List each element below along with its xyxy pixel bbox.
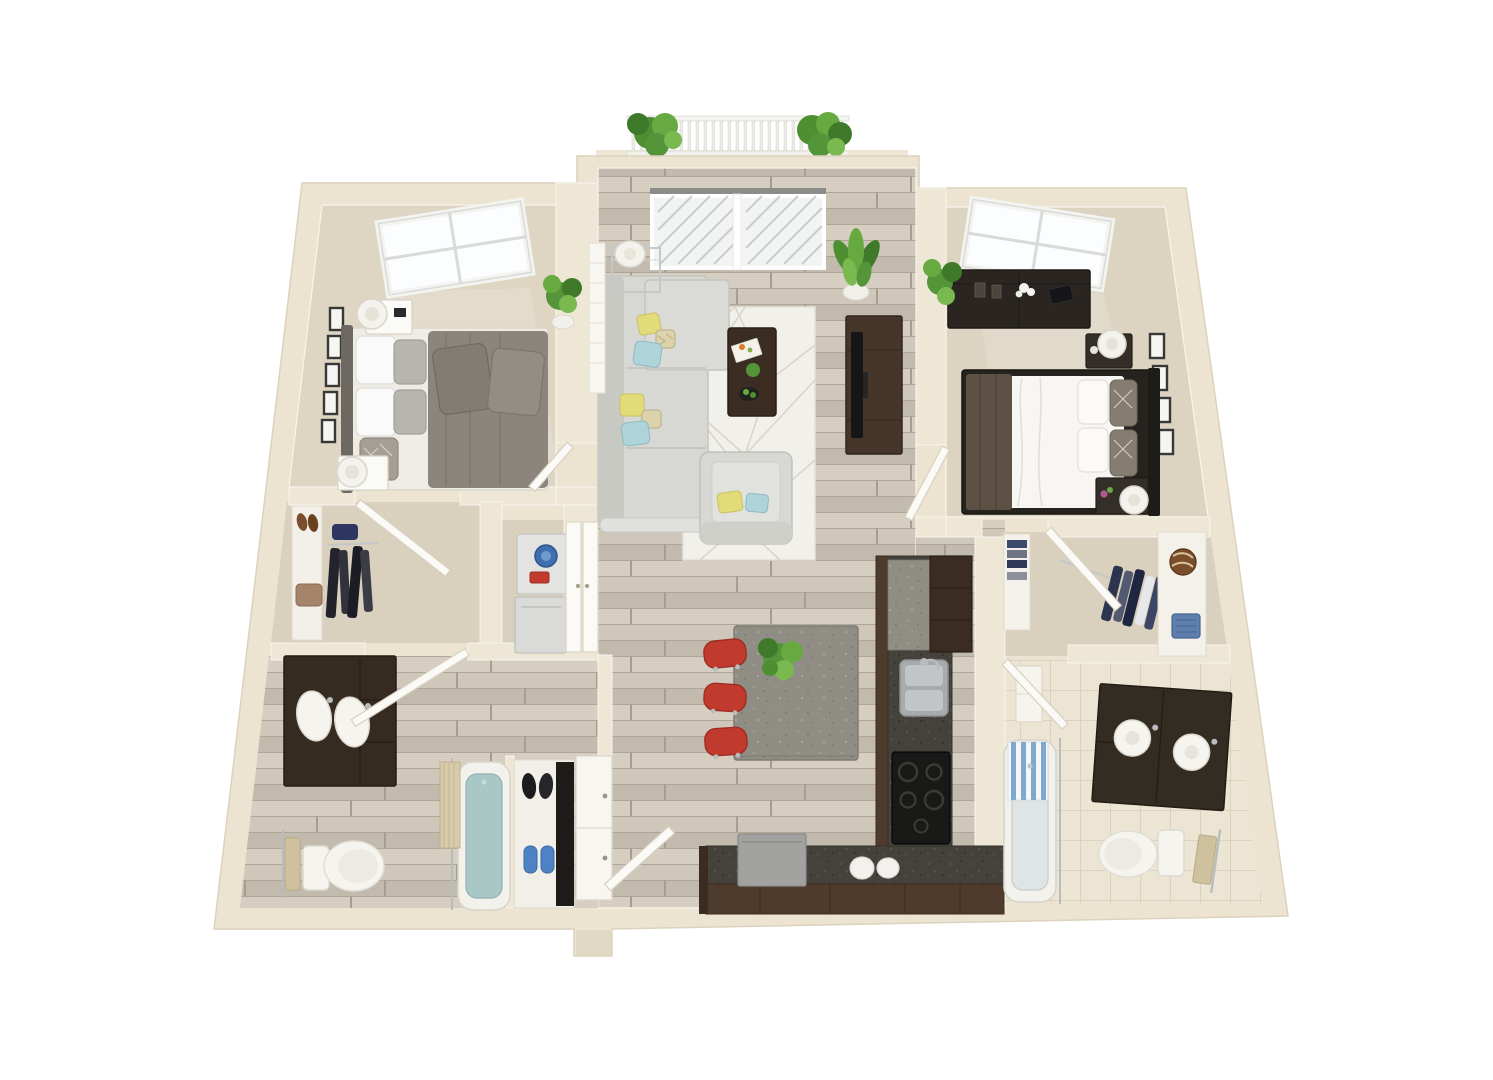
tub2-drain: [1027, 763, 1032, 768]
kitchen-sink: [900, 658, 948, 716]
nightstand-2-bottom: [1096, 478, 1148, 514]
nightstand-2-top: [1086, 330, 1132, 368]
sliding-glass-door: [650, 188, 826, 270]
counter-light-section: [888, 560, 932, 650]
canister-b: [877, 858, 899, 878]
folded-clothes: [1007, 540, 1027, 580]
cushion-gray-1: [432, 343, 495, 416]
flowers: [1107, 487, 1113, 493]
wall-corner-b1: [556, 487, 598, 505]
laundry-closet: [515, 522, 598, 653]
faucet-1a: [327, 697, 333, 703]
blue-slipper-a: [524, 846, 537, 873]
tub-drain: [481, 779, 486, 784]
striped-shower-curtain: [1008, 742, 1048, 800]
wall-corner-b2: [916, 517, 946, 537]
canister-a: [850, 857, 874, 879]
armchair-back: [700, 522, 792, 544]
bag: [296, 584, 322, 606]
towel-bar-1: [283, 830, 300, 898]
coffee-table: [728, 328, 776, 416]
armchair-pillow-yellow: [717, 490, 744, 513]
floor-plan-stage: [0, 0, 1493, 1080]
throw-blanket: [966, 374, 1012, 510]
floor-plan-rendering: [0, 0, 1493, 1080]
alarm-clock: [394, 308, 406, 317]
bowl: [739, 387, 759, 401]
detergent: [530, 572, 549, 583]
shoe-closet-back: [556, 762, 574, 906]
kitchen-island: [734, 626, 858, 760]
toilet-1: [303, 841, 384, 891]
towel-roll: [1170, 549, 1196, 575]
folded-sweater: [332, 524, 358, 540]
counter-end-panel: [699, 846, 708, 914]
cabinet-face-bottom: [706, 884, 1004, 914]
tv-console: [846, 316, 902, 454]
tall-cabinet-fridge: [930, 556, 972, 652]
dryer: [515, 597, 567, 653]
decor-bowl: [1090, 346, 1098, 354]
closet2-shelf-left: [1004, 534, 1030, 630]
toilet-2: [1099, 830, 1184, 877]
vanity-1: [284, 656, 396, 786]
armchair-pillow-blue: [745, 493, 769, 513]
photo-frame-b: [992, 285, 1001, 298]
bar-stool-2: [703, 683, 747, 713]
cooktop: [892, 752, 950, 844]
pantry-cabinet: [576, 756, 612, 900]
blue-slipper-b: [541, 846, 554, 873]
bath-water: [466, 774, 502, 898]
tv: [851, 332, 863, 438]
wall-bedroom2-bottom-left: [946, 517, 982, 537]
wall-bath1-right: [598, 655, 612, 763]
wall-closet1-laundry: [480, 502, 502, 652]
cushion-gray-2: [487, 347, 545, 416]
wall-bedroom2-left: [916, 188, 946, 445]
tv-stand: [863, 372, 868, 398]
wall-paneling: [589, 243, 605, 393]
towel-1: [285, 838, 300, 890]
armchair: [700, 452, 792, 544]
nightstand-1-bottom: [337, 456, 388, 490]
bar-stools: [703, 638, 748, 760]
entry-step-shadow: [576, 930, 612, 955]
dresser: [948, 270, 1090, 328]
photo-frame-a: [975, 283, 985, 297]
bathtub-2: [1004, 738, 1060, 904]
shoe-closet: [514, 760, 574, 908]
table-plant: [746, 363, 760, 377]
sofa-armrest: [600, 518, 706, 532]
shower-curtain-1: [440, 762, 460, 848]
bar-stool-3: [704, 727, 748, 757]
vanity-2: [1092, 684, 1232, 811]
headboard-2: [1148, 368, 1160, 516]
flower-vase: [1016, 291, 1023, 298]
bar-stool-1: [703, 638, 748, 669]
